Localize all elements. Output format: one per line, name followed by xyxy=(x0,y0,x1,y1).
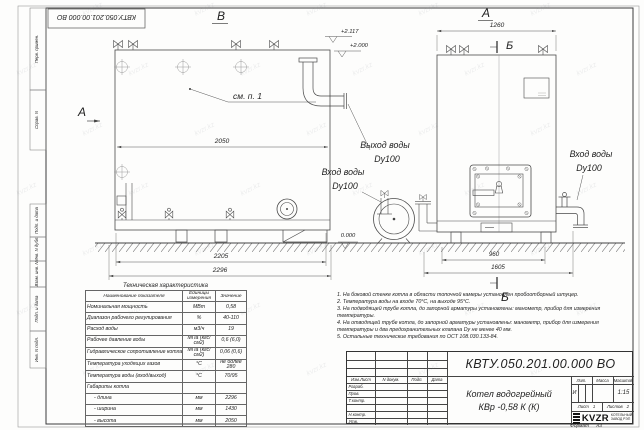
col-izm: Изм.Лист xyxy=(347,376,375,383)
row-tkontr: Т.контр. xyxy=(347,397,377,404)
product-name-line1: Котел водогрейный xyxy=(466,388,552,400)
row-name: - ширина xyxy=(86,405,183,416)
col-units: Единицы измерения xyxy=(183,291,216,302)
table-row: Температура уходящих газов°Сне более 280 xyxy=(86,359,247,371)
tech-table-header: Наименование показателя Единицы измерени… xyxy=(86,291,247,302)
table-row: Температура воды (вход/выход)°С70/95 xyxy=(86,371,247,382)
inlet-label-front: Вход воды Dy100 xyxy=(570,149,613,200)
lit-value: И xyxy=(571,384,578,402)
section-b-top: Б xyxy=(490,40,513,53)
rear-inlet-stub xyxy=(377,190,392,214)
sheets-value: 2 xyxy=(627,404,629,409)
row-units: МПа (кгс/см2) xyxy=(183,347,216,359)
tech-table: Наименование показателя Единицы измерени… xyxy=(85,290,247,427)
kvzr-logo-subtitle: КОТЕЛЬНЫЙ ЗАВОД РЭП xyxy=(611,414,632,422)
furnace-door xyxy=(470,165,531,217)
dim-960-text: 960 xyxy=(489,251,500,258)
dim-2050: 2050 xyxy=(117,138,328,147)
inlet2-label-line2: Dy100 xyxy=(576,163,602,173)
inlet-duct xyxy=(415,194,437,231)
kvzr-logo-icon xyxy=(573,413,580,424)
row-units: МВт xyxy=(183,302,216,313)
col-sign: Подп. xyxy=(407,376,427,383)
side-view xyxy=(114,41,393,243)
table-row: Гидравлическое сопротивление котлаМПа (к… xyxy=(86,347,247,359)
row-units: МПа (кгс/см2) xyxy=(183,335,216,347)
format-note: Формат А3 xyxy=(570,424,602,429)
row-value: 40-110 xyxy=(216,313,247,324)
margin-label: Инв. N дубл. xyxy=(34,237,39,262)
table-row: - ширинамм1430 xyxy=(86,405,247,416)
col-value: Значение xyxy=(216,291,247,302)
drawing-sheet: { "stamp_top": "КВТУ.050.201.00.000 ВО",… xyxy=(0,0,644,430)
row-name: Номинальная мощность xyxy=(86,302,183,313)
sheet-value: 1 xyxy=(593,404,595,409)
elevation-2117: +2.117 xyxy=(325,29,359,43)
note-4: 4. На отводящей трубе котла, до запорной… xyxy=(337,320,634,333)
note-5: 5. Остальные технические требования по О… xyxy=(337,334,634,341)
margin-label: Справ. N xyxy=(34,110,39,129)
inlet-label-line1: Вход воды xyxy=(322,167,365,177)
see-note-callout: см. п. 1 xyxy=(189,88,316,102)
row-name: Гидравлическое сопротивление котла xyxy=(86,347,183,359)
product-name: Котел водогрейный КВр -0,58 К (К) xyxy=(447,376,571,425)
outlet-nozzle xyxy=(299,58,347,109)
title-block: Изм.Лист N докум. Подп. Дата Разраб. Про… xyxy=(346,351,633,424)
row-name: Рабочее давление воды xyxy=(86,335,183,347)
table-row: Диапазон рабочего регулирования%40-110 xyxy=(86,313,247,324)
sheets-cell: Листов 2 xyxy=(602,402,634,411)
drain-pipe xyxy=(117,183,132,220)
note-3: 3. На подводящей трубе котла, до запорно… xyxy=(337,306,634,319)
sight-glass xyxy=(277,199,297,219)
view-a-arrow-label: А xyxy=(77,105,86,119)
row-name: Габариты котла xyxy=(86,382,183,393)
row-units: м3/ч xyxy=(183,324,216,335)
see-note-text: см. п. 1 xyxy=(233,91,262,101)
dim-1260-text: 1260 xyxy=(490,22,505,29)
view-a-label: А xyxy=(481,6,490,20)
row-value: 2296 xyxy=(216,393,247,404)
elevation-2000: +2.000 xyxy=(334,43,369,57)
row-razrab: Разраб. xyxy=(347,383,377,390)
tech-table-title: Техническая характеристика xyxy=(85,283,246,289)
margin-label: Подп. и дата xyxy=(34,206,39,234)
format-value: А3 xyxy=(596,424,602,429)
annotations: см. п. 1 +2.117 +2.000 0.000 Выход воды … xyxy=(189,29,613,304)
drawing-designation: КВТУ.050.201.00.000 ВО xyxy=(447,352,634,376)
table-row: Расход водым3/ч19 xyxy=(86,324,247,335)
elevation-2117-text: +2.117 xyxy=(341,29,359,35)
row-value: 19 xyxy=(216,324,247,335)
inlet-faucet xyxy=(556,193,588,228)
dim-2296-text: 2296 xyxy=(212,267,228,274)
row-units: мм xyxy=(183,393,216,404)
inlet-label-side: Вход воды Dy100 xyxy=(322,167,381,202)
row-name: Температура воды (вход/выход) xyxy=(86,371,183,382)
view-b-label: В xyxy=(217,9,225,23)
note-1: 1. На боковой стенке котла в области топ… xyxy=(337,292,634,299)
row-name: Температура уходящих газов xyxy=(86,359,183,371)
kvzr-logo-sub2: ЗАВОД РЭП xyxy=(611,418,632,422)
section-b-top-text: Б xyxy=(506,40,513,52)
row-units: °С xyxy=(183,371,216,382)
kvzr-logo: KVZR КОТЕЛЬНЫЙ ЗАВОД РЭП xyxy=(571,411,634,425)
blower-fan xyxy=(374,199,415,244)
elevation-2000-text: +2.000 xyxy=(350,43,369,49)
margin-label: Инв. N подл. xyxy=(34,337,39,362)
row-units: °С xyxy=(183,359,216,371)
mass-label: Масса xyxy=(592,376,613,384)
table-row: Рабочее давление водыМПа (кгс/см2)0,6 (6… xyxy=(86,335,247,347)
view-labels: В А А xyxy=(77,6,493,121)
sheet-cell: Лист 1 xyxy=(571,402,602,411)
technical-notes: 1. На боковой стенке котла в области топ… xyxy=(337,292,634,341)
row-name: Диапазон рабочего регулирования xyxy=(86,313,183,324)
col-doc: N докум. xyxy=(375,376,407,383)
row-prov: Пров. xyxy=(347,390,377,397)
row-units: мм xyxy=(183,416,216,427)
row-units: % xyxy=(183,313,216,324)
elevation-0-text: 0.000 xyxy=(341,233,356,239)
col-date: Дата xyxy=(427,376,447,383)
table-row: Габариты котла xyxy=(86,382,247,393)
ground-line xyxy=(95,243,625,252)
row-utv: Утв. xyxy=(347,418,377,425)
margin-label: Подп. и дата xyxy=(34,295,39,323)
row-value: не более 280 xyxy=(216,359,247,371)
nameplate xyxy=(524,78,549,98)
product-name-line2: КВр -0,58 К (К) xyxy=(479,401,540,413)
row-units: мм xyxy=(183,405,216,416)
row-value xyxy=(216,382,247,393)
margin-label: Взам. инв. N xyxy=(34,261,39,287)
col-name: Наименование показателя xyxy=(86,291,183,302)
boiler-supports xyxy=(176,230,327,242)
row-name: - длина xyxy=(86,393,183,404)
lit-label: Лит. xyxy=(571,376,592,384)
row-value: 70/95 xyxy=(216,371,247,382)
row-value: 0,6 (6,0) xyxy=(216,335,247,347)
scale-label: Масштаб xyxy=(613,376,634,384)
top-stamp-text: КВТУ.050.201.00.000 ВО xyxy=(56,13,136,20)
row-value: 0,06 (0,6) xyxy=(216,347,247,359)
tech-characteristics: Техническая характеристика Наименование … xyxy=(85,283,246,427)
dimensions: 2050 2205 2296 1260 960 1605 xyxy=(109,22,573,280)
dim-1605-text: 1605 xyxy=(491,264,505,271)
inlet-label-line2: Dy100 xyxy=(332,181,358,191)
row-nkontr: Н.контр. xyxy=(347,411,377,418)
outlet-label: Выход воды Dy100 xyxy=(348,104,410,164)
dim-2205-text: 2205 xyxy=(213,253,229,260)
kvzr-logo-text: KVZR xyxy=(582,413,609,424)
table-row: - длинамм2296 xyxy=(86,393,247,404)
row-value: 2050 xyxy=(216,416,247,427)
margin-labels: Перв. примен. Справ. N Подп. и дата Инв.… xyxy=(34,35,39,362)
row-name: - высота xyxy=(86,416,183,427)
inlet2-label-line1: Вход воды xyxy=(570,149,613,159)
table-row: Номинальная мощностьМВт0,58 xyxy=(86,302,247,313)
outlet-label-line2: Dy100 xyxy=(374,154,400,164)
table-row: - высотамм2050 xyxy=(86,416,247,427)
dim-2050-text: 2050 xyxy=(214,138,230,145)
scale-value: 1:15 xyxy=(613,384,634,402)
row-value: 1430 xyxy=(216,405,247,416)
row-value: 0,58 xyxy=(216,302,247,313)
format-label: Формат xyxy=(570,424,589,429)
row-name: Расход воды xyxy=(86,324,183,335)
row-units xyxy=(183,382,216,393)
note-2: 2. Температура воды на входе 70°С, на вы… xyxy=(337,299,634,306)
sheets-label: Листов xyxy=(607,404,623,409)
ash-door xyxy=(481,223,512,232)
sheet-label: Лист xyxy=(578,404,589,409)
margin-label: Перв. примен. xyxy=(34,35,39,64)
front-view xyxy=(437,46,588,244)
